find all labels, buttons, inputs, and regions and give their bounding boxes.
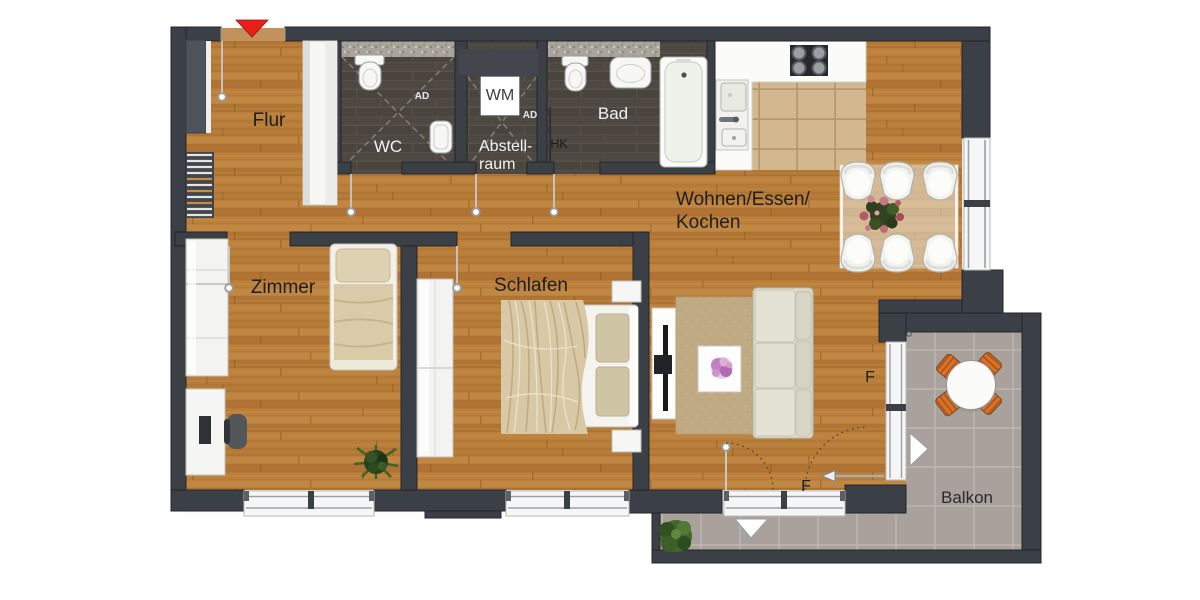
svg-text:Balkon: Balkon [941, 488, 993, 507]
svg-text:Zimmer: Zimmer [251, 277, 316, 298]
svg-text:Abstell-: Abstell- [479, 138, 532, 155]
svg-text:Bad: Bad [598, 104, 628, 123]
svg-text:Wohnen/Essen/: Wohnen/Essen/ [676, 189, 811, 210]
svg-text:WC: WC [374, 137, 402, 156]
svg-text:HK: HK [550, 137, 568, 151]
svg-text:Schlafen: Schlafen [494, 275, 568, 296]
svg-text:AD: AD [415, 91, 429, 102]
svg-text:Kochen: Kochen [676, 212, 740, 233]
svg-text:Flur: Flur [253, 110, 286, 131]
svg-text:F: F [865, 369, 875, 386]
svg-text:raum: raum [479, 156, 515, 173]
svg-text:AD: AD [523, 110, 537, 121]
svg-text:F: F [801, 478, 811, 495]
svg-text:WM: WM [486, 87, 514, 104]
